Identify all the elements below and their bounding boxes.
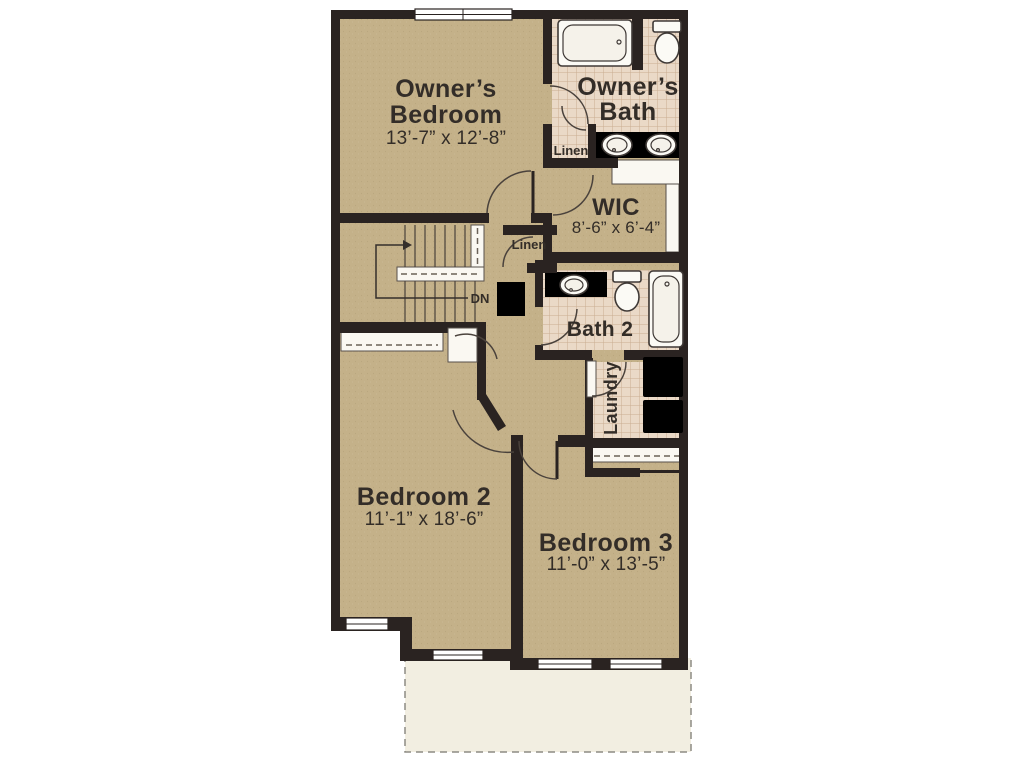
laundry-washer-dryer [643,357,683,433]
floor-plan-drawing: Owner’s Bedroom 13’-7” x 12’-8” Owner’s … [0,0,1024,768]
bath2-toilet [613,271,641,311]
owners-bath-toilet [653,21,681,63]
attic-access-hatch [497,282,525,316]
bedroom3-label: Bedroom 3 [539,529,673,557]
wic-label: WIC [592,194,640,221]
bedroom3-window-right [610,659,662,669]
bedroom2-dimensions: 11’-1” x 18’-6” [365,509,484,530]
bedroom2-side-window [346,618,388,630]
bath2-vanity [545,272,607,297]
owners-bath-sink-left [602,134,632,156]
floor-plan-page: Owner’s Bedroom 13’-7” x 12’-8” Owner’s … [0,0,1024,768]
owners-bedroom-label-line2: Bedroom [390,101,503,129]
hall-linen-label: Linen [512,237,547,252]
bath2-label: Bath 2 [567,318,634,341]
bath2-tub [649,271,683,347]
owners-bath-sink-right [646,134,676,156]
owners-bedroom-label-line1: Owner’s [395,75,496,103]
owners-bedroom-dimensions: 13’-7” x 12’-8” [386,128,506,149]
bedroom2-window [433,650,483,660]
laundry-label: Laundry [601,361,621,435]
bedroom3-window-left [538,659,592,669]
owners-bath-label-line2: Bath [599,98,656,126]
owners-bath-vanity [595,132,679,158]
owners-bath-label-line1: Owner’s [577,73,678,101]
owners-linen-label: Linen [554,143,589,158]
stairs-dn-label: DN [471,291,490,306]
owners-bedroom-window [415,9,512,20]
wic-dimensions: 8’-6” x 6’-4” [572,218,661,237]
roof-below-dashed-area [405,658,691,752]
bedroom2-label: Bedroom 2 [357,483,491,511]
bedroom3-dimensions: 11’-0” x 13’-5” [547,554,666,575]
owners-bath-tub [558,20,632,66]
